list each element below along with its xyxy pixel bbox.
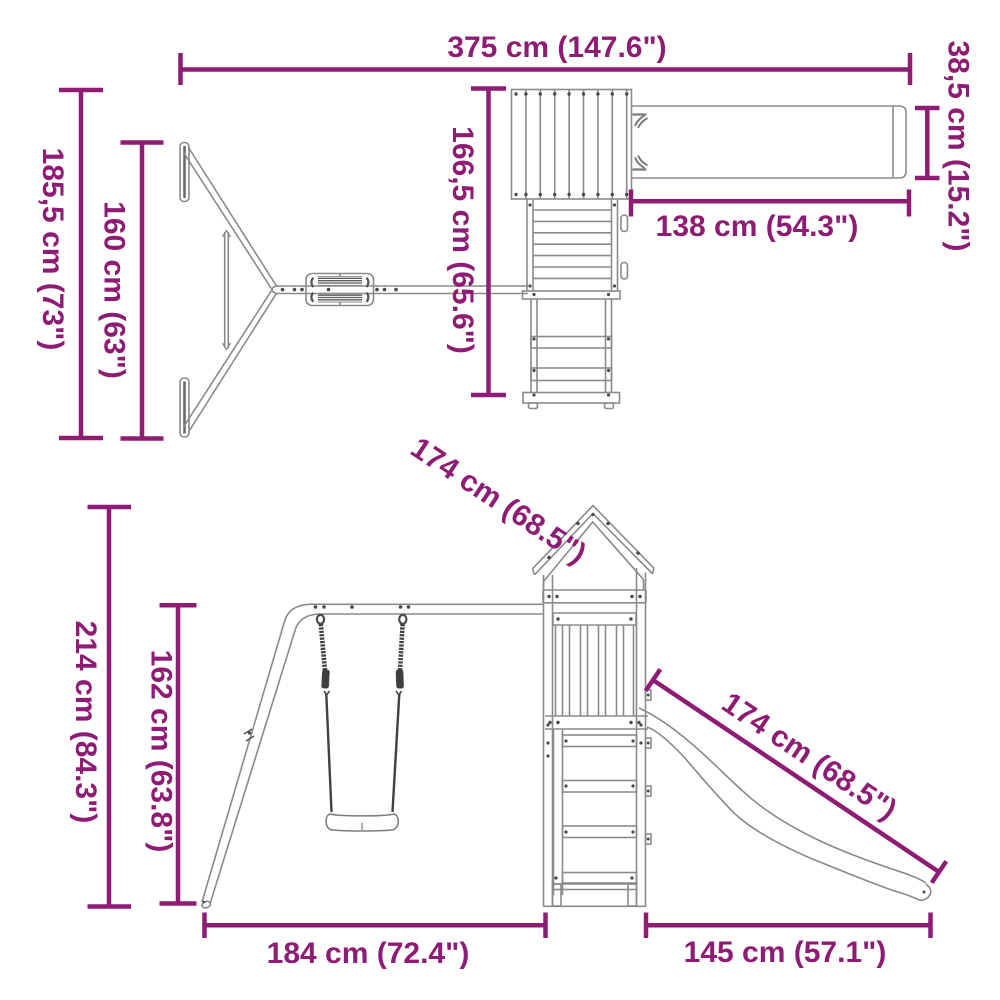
svg-text:166,5 cm (65.6"): 166,5 cm (65.6") <box>446 126 479 354</box>
svg-text:138 cm (54.3"): 138 cm (54.3") <box>656 210 859 243</box>
svg-text:38,5 cm (15.2"): 38,5 cm (15.2") <box>942 40 975 251</box>
svg-text:160 cm (63"): 160 cm (63") <box>98 201 131 379</box>
svg-text:375 cm (147.6"): 375 cm (147.6") <box>447 31 666 64</box>
svg-text:184 cm (72.4"): 184 cm (72.4") <box>267 937 470 970</box>
svg-text:214 cm (84.3"): 214 cm (84.3") <box>69 621 102 824</box>
svg-text:162 cm (63.8"): 162 cm (63.8") <box>145 650 178 853</box>
svg-text:145 cm (57.1"): 145 cm (57.1") <box>684 936 887 969</box>
svg-text:185,5 cm (73"): 185,5 cm (73") <box>36 148 69 351</box>
